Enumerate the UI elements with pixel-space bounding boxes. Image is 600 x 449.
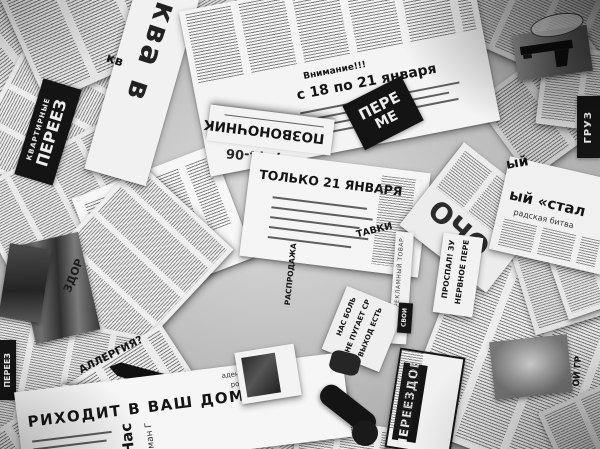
spine-headline: ПОЗВОНОЧНИК — [203, 116, 325, 144]
cargo-banner: ГРУЗ — [577, 96, 600, 158]
dark-object-photo-2 — [352, 420, 378, 446]
small-photo-card — [234, 344, 301, 405]
svoi-banner: СВОИ — [397, 303, 413, 334]
relocations-card: ПЕРЕЕЗДОВ — [385, 347, 466, 449]
svoi-text: СВОИ — [401, 308, 409, 328]
nas-fragment-text: «Нас — [119, 422, 139, 449]
text-line — [33, 440, 107, 449]
text-line — [268, 236, 352, 248]
newspaper-collage-photo: осква в кв Внимание!!! с 18 по 21 января… — [0, 0, 600, 449]
left-edge-moving-strip: ПЕРЕЕЗ — [0, 340, 16, 400]
ad-strip-text: РЕКЛАМНЫЙ ТОВАР — [395, 238, 406, 308]
small-photo — [241, 353, 281, 398]
comes-home-headline: РИХОДИТ В ВАШ ДОМ — [27, 388, 246, 430]
y-fragment-text: ый — [505, 154, 530, 172]
left-edge-moving-text: ПЕРЕЕЗ — [4, 353, 13, 388]
face-photo — [489, 334, 573, 400]
nervous-text: НЕРВНОЕ ПЕРЕ — [454, 239, 470, 304]
roman-fragment-text: Роман Г — [145, 422, 159, 449]
cargo-text: ГРУЗ — [583, 111, 594, 144]
text-line — [270, 216, 360, 228]
